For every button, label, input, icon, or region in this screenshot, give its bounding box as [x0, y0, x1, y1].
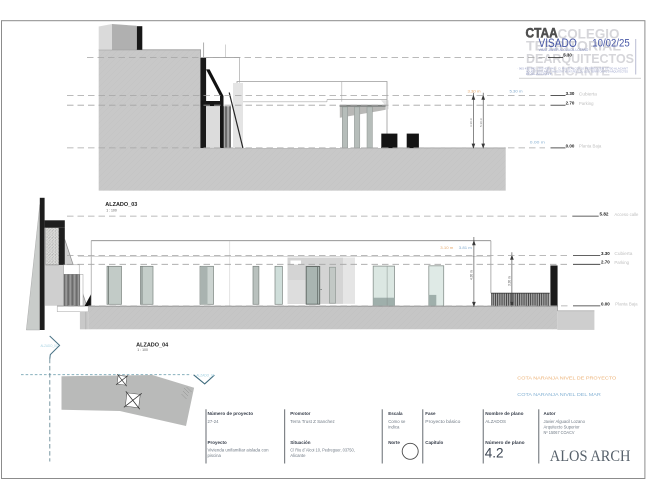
- svg-text:Vivienda unifamiliar aislada c: Vivienda unifamiliar aislada con: [208, 448, 270, 453]
- svg-text:COTA NARANJA NIVEL DE PROYECTO: COTA NARANJA NIVEL DE PROYECTO: [517, 376, 616, 381]
- svg-text:Escala: Escala: [388, 411, 403, 416]
- svg-text:C/ Riu d´Alcoi 10, Pedreguer,: C/ Riu d´Alcoi 10, Pedreguer, 03750,: [290, 448, 355, 453]
- svg-text:ALZADO_03: ALZADO_03: [105, 202, 137, 208]
- svg-text:0.00 m: 0.00 m: [530, 141, 545, 145]
- svg-text:Nombre de plano: Nombre de plano: [485, 411, 523, 416]
- svg-text:Proyecto básico: Proyecto básico: [425, 419, 461, 424]
- svg-text:Número de plano: Número de plano: [485, 440, 525, 445]
- svg-text:4.2: 4.2: [485, 446, 504, 461]
- svg-text:Como se: Como se: [388, 419, 406, 424]
- svg-text:Proyecto: Proyecto: [208, 440, 228, 445]
- svg-text:2.70: 2.70: [601, 260, 610, 265]
- svg-text:3.30 m: 3.30 m: [469, 117, 473, 127]
- svg-text:COTA NARANJA NIVEL DEL MAR: COTA NARANJA NIVEL DEL MAR: [517, 392, 601, 397]
- svg-text:5.82: 5.82: [600, 212, 610, 217]
- svg-text:Autor: Autor: [544, 411, 556, 416]
- svg-text:piscina: piscina: [208, 453, 222, 458]
- svg-text:Planta Baja: Planta Baja: [615, 302, 638, 307]
- svg-text:ALZADO_03: ALZADO_03: [41, 344, 58, 348]
- svg-text:Cubierta: Cubierta: [579, 91, 598, 96]
- svg-text:5.30 m: 5.30 m: [510, 90, 523, 94]
- svg-text:Arquitecto Superior: Arquitecto Superior: [544, 424, 581, 429]
- svg-text:10/02/25: 10/02/25: [592, 38, 629, 50]
- svg-text:1 : 100: 1 : 100: [106, 208, 117, 212]
- svg-text:ALOS ARCH: ALOS ARCH: [550, 448, 631, 465]
- svg-text:1 : 100: 1 : 100: [137, 348, 148, 352]
- svg-text:2.70: 2.70: [566, 101, 575, 106]
- svg-text:5.30: 5.30: [563, 53, 572, 58]
- svg-text:ALZADOS: ALZADOS: [485, 419, 506, 424]
- svg-text:Alicante: Alicante: [290, 453, 306, 458]
- svg-text:3.10 m: 3.10 m: [440, 246, 453, 250]
- svg-text:Terra Trust Z Sanchez: Terra Trust Z Sanchez: [290, 419, 335, 424]
- svg-text:5.30 m: 5.30 m: [479, 117, 483, 127]
- svg-text:Planta Baja: Planta Baja: [579, 144, 602, 149]
- svg-text:ALZADO_04: ALZADO_04: [196, 374, 214, 378]
- svg-text:0.00: 0.00: [566, 143, 575, 148]
- svg-text:Norte: Norte: [388, 440, 400, 445]
- svg-text:Promotor: Promotor: [290, 411, 310, 416]
- svg-text:3.81 m: 3.81 m: [459, 246, 472, 250]
- svg-text:3.30 m: 3.30 m: [468, 90, 481, 94]
- svg-text:Capítulo: Capítulo: [425, 440, 443, 445]
- svg-text:Parking: Parking: [579, 101, 594, 106]
- svg-text:Javier Alguacil Lozano: Javier Alguacil Lozano: [544, 419, 586, 424]
- svg-text:Nº 15067 COACV: Nº 15067 COACV: [544, 430, 575, 435]
- svg-text:0.00: 0.00: [601, 301, 610, 306]
- svg-text:3.30: 3.30: [566, 91, 575, 96]
- svg-text:4.30 m: 4.30 m: [470, 270, 474, 280]
- svg-text:3.30 m: 3.30 m: [508, 276, 512, 286]
- svg-text:Cubierta: Cubierta: [614, 251, 633, 256]
- svg-text:3.30: 3.30: [601, 251, 610, 256]
- svg-text:Situación: Situación: [290, 440, 311, 445]
- svg-text:Acceso calle: Acceso calle: [614, 212, 639, 217]
- svg-text:Parking: Parking: [614, 260, 629, 265]
- svg-text:D'ALACANT: D'ALACANT: [526, 72, 552, 76]
- svg-text:27-24: 27-24: [208, 419, 220, 424]
- svg-text:Fase: Fase: [425, 411, 436, 416]
- svg-text:indica: indica: [388, 424, 400, 429]
- svg-text:VISAT JAVIER ALGUACIL LOZANO: VISAT JAVIER ALGUACIL LOZANO: [539, 48, 589, 52]
- svg-text:Número de proyecto: Número de proyecto: [208, 411, 254, 416]
